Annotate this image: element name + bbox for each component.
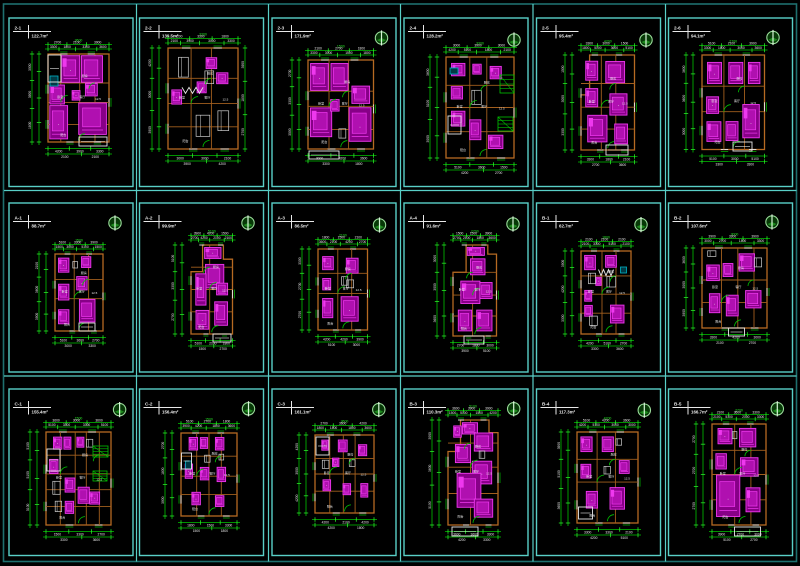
svg-text:3300: 3300 bbox=[76, 533, 84, 537]
svg-text:3000: 3000 bbox=[325, 51, 333, 55]
svg-text:2100: 2100 bbox=[585, 237, 593, 241]
svg-text:5100: 5100 bbox=[609, 242, 617, 246]
svg-text:3300: 3300 bbox=[716, 163, 724, 167]
svg-text:▪: ▪ bbox=[475, 250, 476, 253]
svg-text:▪: ▪ bbox=[76, 94, 77, 97]
svg-text:3600: 3600 bbox=[364, 426, 372, 430]
svg-text:▪: ▪ bbox=[63, 265, 64, 268]
svg-text:2700: 2700 bbox=[320, 421, 328, 425]
svg-text:1500: 1500 bbox=[338, 235, 346, 239]
svg-text:161.1m²: 161.1m² bbox=[295, 409, 312, 414]
svg-text:3300: 3300 bbox=[487, 533, 495, 537]
svg-text:3600: 3600 bbox=[488, 236, 496, 240]
svg-text:171.9m²: 171.9m² bbox=[295, 33, 312, 38]
svg-text:1800: 1800 bbox=[161, 467, 165, 475]
svg-text:▪: ▪ bbox=[470, 428, 471, 431]
svg-text:3600: 3600 bbox=[93, 538, 101, 542]
svg-text:3600: 3600 bbox=[77, 339, 85, 343]
svg-text:12.5: 12.5 bbox=[499, 107, 505, 111]
svg-text:5100: 5100 bbox=[483, 349, 491, 353]
svg-text:4200: 4200 bbox=[322, 521, 330, 525]
svg-text:5100: 5100 bbox=[426, 100, 430, 108]
svg-text:客厅: 客厅 bbox=[209, 471, 215, 476]
svg-text:110.3m²: 110.3m² bbox=[427, 409, 444, 414]
svg-text:12.5: 12.5 bbox=[752, 287, 758, 291]
svg-text:3900: 3900 bbox=[718, 533, 726, 537]
svg-text:3600: 3600 bbox=[478, 166, 486, 170]
svg-text:3900: 3900 bbox=[161, 496, 165, 504]
svg-text:▪: ▪ bbox=[725, 436, 726, 439]
svg-text:3900: 3900 bbox=[708, 234, 716, 238]
svg-text:▪: ▪ bbox=[728, 498, 729, 501]
svg-text:2700: 2700 bbox=[220, 347, 228, 351]
svg-text:▪: ▪ bbox=[495, 72, 496, 75]
svg-text:3900: 3900 bbox=[90, 240, 98, 244]
svg-text:5100: 5100 bbox=[328, 343, 336, 347]
svg-text:2100: 2100 bbox=[224, 157, 232, 161]
svg-text:5100: 5100 bbox=[454, 166, 462, 170]
svg-text:▪: ▪ bbox=[465, 321, 466, 324]
svg-text:阳台: 阳台 bbox=[589, 513, 595, 518]
svg-text:卧室: 卧室 bbox=[455, 469, 461, 474]
svg-text:2700: 2700 bbox=[288, 69, 292, 77]
svg-text:12.5: 12.5 bbox=[222, 288, 228, 292]
svg-text:1800: 1800 bbox=[28, 121, 32, 129]
svg-text:1800: 1800 bbox=[187, 524, 195, 528]
svg-text:3000: 3000 bbox=[73, 418, 81, 422]
svg-text:3900: 3900 bbox=[468, 406, 476, 410]
svg-text:1500: 1500 bbox=[221, 231, 229, 235]
svg-text:5100: 5100 bbox=[186, 419, 194, 423]
svg-text:4200: 4200 bbox=[55, 150, 63, 154]
svg-text:4200: 4200 bbox=[586, 342, 594, 346]
svg-text:阳台: 阳台 bbox=[461, 326, 467, 331]
svg-text:▪: ▪ bbox=[457, 431, 458, 434]
svg-text:B-1: B-1 bbox=[542, 216, 550, 221]
svg-text:3600: 3600 bbox=[682, 95, 686, 103]
svg-text:3300: 3300 bbox=[74, 240, 82, 244]
svg-text:3000: 3000 bbox=[628, 423, 636, 427]
svg-text:1500: 1500 bbox=[500, 166, 508, 170]
svg-text:3300: 3300 bbox=[757, 415, 765, 419]
svg-text:1800: 1800 bbox=[718, 46, 726, 50]
svg-text:▪: ▪ bbox=[598, 280, 599, 283]
svg-text:3000: 3000 bbox=[682, 128, 686, 136]
svg-text:3900: 3900 bbox=[184, 162, 192, 166]
svg-text:客厅: 客厅 bbox=[474, 287, 480, 292]
svg-text:2700: 2700 bbox=[171, 313, 175, 321]
svg-text:4200: 4200 bbox=[458, 538, 466, 542]
svg-text:2100: 2100 bbox=[742, 415, 750, 419]
svg-text:12.5: 12.5 bbox=[96, 477, 102, 481]
svg-text:客厅: 客厅 bbox=[79, 94, 85, 99]
svg-text:厨房: 厨房 bbox=[345, 266, 351, 271]
svg-text:4200: 4200 bbox=[359, 421, 367, 425]
svg-text:5100: 5100 bbox=[625, 46, 633, 50]
svg-text:2700: 2700 bbox=[241, 128, 245, 136]
svg-text:▪: ▪ bbox=[714, 73, 715, 76]
svg-text:厨房: 厨房 bbox=[738, 265, 744, 270]
svg-text:94.1m²: 94.1m² bbox=[691, 33, 705, 38]
svg-text:4200: 4200 bbox=[489, 411, 497, 415]
svg-text:3000: 3000 bbox=[177, 157, 185, 161]
svg-text:3600: 3600 bbox=[616, 347, 624, 351]
svg-text:3900: 3900 bbox=[557, 442, 561, 450]
svg-text:1500: 1500 bbox=[345, 51, 353, 55]
svg-text:客厅: 客厅 bbox=[739, 471, 745, 476]
svg-text:3300: 3300 bbox=[587, 158, 595, 162]
svg-text:▪: ▪ bbox=[586, 444, 587, 447]
svg-text:阳台: 阳台 bbox=[457, 514, 463, 519]
svg-text:4200: 4200 bbox=[175, 34, 183, 38]
svg-text:阳台: 阳台 bbox=[182, 138, 188, 143]
svg-text:5100: 5100 bbox=[557, 470, 561, 478]
svg-text:▪: ▪ bbox=[713, 272, 714, 275]
svg-text:3900: 3900 bbox=[28, 91, 32, 99]
svg-text:3600: 3600 bbox=[682, 256, 686, 264]
svg-text:卧室: 卧室 bbox=[57, 94, 63, 99]
svg-text:155.4m²: 155.4m² bbox=[32, 409, 49, 414]
svg-text:2100: 2100 bbox=[73, 40, 81, 44]
svg-text:12.5: 12.5 bbox=[359, 103, 365, 107]
svg-text:卧室: 卧室 bbox=[459, 287, 465, 292]
svg-text:3000: 3000 bbox=[65, 344, 73, 348]
svg-text:3900: 3900 bbox=[561, 260, 565, 268]
svg-text:客厅: 客厅 bbox=[481, 104, 487, 109]
svg-text:3000: 3000 bbox=[498, 43, 506, 47]
svg-text:▪: ▪ bbox=[349, 309, 350, 312]
svg-text:3300: 3300 bbox=[225, 524, 233, 528]
svg-text:厨房: 厨房 bbox=[213, 264, 219, 269]
svg-text:3000: 3000 bbox=[426, 135, 430, 143]
svg-text:3600: 3600 bbox=[228, 424, 236, 428]
svg-text:卧室: 卧室 bbox=[457, 104, 463, 109]
svg-text:3000: 3000 bbox=[295, 467, 299, 475]
svg-text:卧室: 卧室 bbox=[189, 471, 195, 476]
svg-text:3900: 3900 bbox=[749, 41, 757, 45]
svg-text:卧室: 卧室 bbox=[56, 475, 62, 480]
svg-text:2100: 2100 bbox=[330, 240, 338, 244]
svg-text:4200: 4200 bbox=[323, 338, 331, 342]
svg-text:5100: 5100 bbox=[708, 41, 716, 45]
svg-text:107.6m²: 107.6m² bbox=[691, 223, 708, 228]
svg-text:▪: ▪ bbox=[94, 497, 95, 500]
svg-text:2700: 2700 bbox=[92, 339, 100, 343]
svg-text:2-5: 2-5 bbox=[542, 26, 549, 31]
svg-text:2700: 2700 bbox=[54, 40, 62, 44]
svg-text:2700: 2700 bbox=[495, 171, 503, 175]
svg-text:3000: 3000 bbox=[433, 283, 437, 291]
svg-text:3900: 3900 bbox=[182, 424, 190, 428]
svg-text:3300: 3300 bbox=[89, 344, 97, 348]
svg-text:阳台: 阳台 bbox=[327, 320, 333, 325]
svg-text:3600: 3600 bbox=[734, 410, 742, 414]
svg-text:1500: 1500 bbox=[56, 245, 64, 249]
svg-text:2700: 2700 bbox=[750, 538, 758, 542]
svg-text:2-2: 2-2 bbox=[145, 26, 152, 31]
svg-text:2100: 2100 bbox=[213, 236, 221, 240]
svg-text:1800: 1800 bbox=[348, 426, 356, 430]
svg-text:2100: 2100 bbox=[355, 235, 363, 239]
svg-text:3600: 3600 bbox=[52, 418, 60, 422]
svg-text:4200: 4200 bbox=[207, 231, 215, 235]
svg-text:12.5: 12.5 bbox=[356, 288, 362, 292]
svg-text:卧室: 卧室 bbox=[62, 289, 68, 294]
svg-text:客厅: 客厅 bbox=[608, 474, 614, 479]
svg-text:3900: 3900 bbox=[94, 40, 102, 44]
svg-text:1800: 1800 bbox=[363, 51, 371, 55]
svg-text:阳台: 阳台 bbox=[321, 139, 327, 144]
svg-text:62.7m²: 62.7m² bbox=[559, 223, 573, 228]
svg-text:2700: 2700 bbox=[692, 502, 696, 510]
svg-text:1500: 1500 bbox=[207, 524, 215, 528]
svg-text:3000: 3000 bbox=[28, 63, 32, 71]
svg-text:2-1: 2-1 bbox=[15, 26, 22, 31]
svg-text:3300: 3300 bbox=[584, 531, 592, 535]
svg-text:3000: 3000 bbox=[611, 423, 619, 427]
svg-text:阳台: 阳台 bbox=[715, 318, 721, 323]
svg-text:12.5: 12.5 bbox=[486, 472, 492, 476]
svg-text:1800: 1800 bbox=[322, 235, 330, 239]
svg-text:3600: 3600 bbox=[623, 418, 631, 422]
svg-text:3000: 3000 bbox=[486, 344, 494, 348]
svg-text:1800: 1800 bbox=[64, 45, 72, 49]
svg-text:▪: ▪ bbox=[326, 484, 327, 487]
svg-text:3300: 3300 bbox=[561, 128, 565, 136]
svg-text:3600: 3600 bbox=[611, 46, 619, 50]
svg-text:2100: 2100 bbox=[463, 236, 471, 240]
svg-text:12.5: 12.5 bbox=[95, 97, 101, 101]
svg-text:3300: 3300 bbox=[197, 34, 205, 38]
svg-text:3000: 3000 bbox=[602, 41, 610, 45]
svg-text:▪: ▪ bbox=[714, 303, 715, 306]
svg-text:2700: 2700 bbox=[692, 435, 696, 443]
svg-text:3900: 3900 bbox=[461, 349, 469, 353]
svg-text:2100: 2100 bbox=[618, 237, 626, 241]
svg-text:95.4m²: 95.4m² bbox=[559, 33, 573, 38]
svg-text:▪: ▪ bbox=[212, 252, 213, 255]
svg-text:1500: 1500 bbox=[95, 245, 103, 249]
svg-text:12.5: 12.5 bbox=[753, 474, 759, 478]
svg-text:▪: ▪ bbox=[327, 263, 328, 266]
svg-text:厨房: 厨房 bbox=[82, 452, 88, 457]
svg-text:3000: 3000 bbox=[148, 91, 152, 99]
svg-text:卧室: 卧室 bbox=[586, 474, 592, 479]
svg-text:▪: ▪ bbox=[360, 126, 361, 129]
svg-text:客厅: 客厅 bbox=[204, 95, 210, 100]
svg-text:91.6m²: 91.6m² bbox=[427, 223, 441, 228]
svg-text:阳台: 阳台 bbox=[327, 504, 333, 509]
svg-text:客厅: 客厅 bbox=[211, 286, 217, 291]
svg-text:阳台: 阳台 bbox=[198, 324, 204, 329]
svg-text:阳台: 阳台 bbox=[715, 139, 721, 144]
svg-text:3300: 3300 bbox=[60, 538, 68, 542]
svg-text:2100: 2100 bbox=[582, 242, 590, 246]
svg-text:3600: 3600 bbox=[339, 421, 347, 425]
svg-text:2700: 2700 bbox=[161, 442, 165, 450]
svg-text:阳台: 阳台 bbox=[591, 139, 597, 144]
svg-text:2700: 2700 bbox=[335, 46, 343, 50]
svg-text:4200: 4200 bbox=[195, 424, 203, 428]
svg-text:2100: 2100 bbox=[61, 155, 69, 159]
svg-text:12.5: 12.5 bbox=[624, 476, 630, 480]
svg-text:5100: 5100 bbox=[428, 501, 432, 509]
svg-text:3000: 3000 bbox=[316, 157, 324, 161]
svg-text:2-4: 2-4 bbox=[410, 26, 417, 31]
svg-text:C-1: C-1 bbox=[15, 402, 23, 407]
svg-text:阳台: 阳台 bbox=[722, 514, 728, 519]
svg-text:4200: 4200 bbox=[295, 494, 299, 502]
svg-text:▪: ▪ bbox=[222, 77, 223, 80]
svg-text:1800: 1800 bbox=[212, 424, 220, 428]
svg-text:3300: 3300 bbox=[227, 39, 235, 43]
svg-text:客厅: 客厅 bbox=[608, 99, 614, 104]
svg-text:阳台: 阳台 bbox=[192, 506, 198, 511]
svg-text:3000: 3000 bbox=[453, 43, 461, 47]
svg-text:5100: 5100 bbox=[594, 46, 602, 50]
svg-text:5100: 5100 bbox=[464, 48, 472, 52]
svg-text:5100: 5100 bbox=[583, 418, 591, 422]
svg-text:5100: 5100 bbox=[101, 423, 109, 427]
svg-text:▪: ▪ bbox=[202, 320, 203, 323]
svg-text:3000: 3000 bbox=[704, 239, 712, 243]
svg-text:卧室: 卧室 bbox=[318, 101, 324, 106]
svg-text:3300: 3300 bbox=[593, 242, 601, 246]
svg-text:1800: 1800 bbox=[221, 529, 229, 533]
svg-text:5100: 5100 bbox=[621, 536, 629, 540]
svg-text:1800: 1800 bbox=[223, 419, 231, 423]
svg-text:3900: 3900 bbox=[186, 39, 194, 43]
svg-text:3300: 3300 bbox=[586, 41, 594, 45]
svg-text:3900: 3900 bbox=[194, 231, 202, 235]
svg-text:12.5: 12.5 bbox=[750, 101, 756, 105]
svg-text:厨房: 厨房 bbox=[484, 79, 490, 84]
svg-text:3900: 3900 bbox=[751, 234, 759, 238]
svg-text:2700: 2700 bbox=[98, 533, 106, 537]
svg-text:3300: 3300 bbox=[757, 239, 765, 243]
svg-text:3300: 3300 bbox=[82, 45, 90, 49]
svg-text:4200: 4200 bbox=[200, 236, 208, 240]
svg-text:1800: 1800 bbox=[241, 94, 245, 102]
svg-text:厨房: 厨房 bbox=[212, 451, 218, 456]
svg-text:1500: 1500 bbox=[476, 411, 484, 415]
svg-text:2700: 2700 bbox=[719, 239, 727, 243]
svg-text:3000: 3000 bbox=[208, 39, 216, 43]
svg-text:3000: 3000 bbox=[428, 432, 432, 440]
svg-text:1500: 1500 bbox=[456, 231, 464, 235]
svg-text:2100: 2100 bbox=[601, 237, 609, 241]
svg-text:3900: 3900 bbox=[485, 406, 493, 410]
svg-text:3000: 3000 bbox=[66, 245, 74, 249]
svg-text:1800: 1800 bbox=[317, 426, 325, 430]
svg-text:1800: 1800 bbox=[221, 34, 229, 38]
svg-text:12.5: 12.5 bbox=[222, 98, 228, 102]
svg-text:▪: ▪ bbox=[58, 124, 59, 127]
svg-text:4200: 4200 bbox=[461, 171, 469, 175]
svg-text:3300: 3300 bbox=[561, 314, 565, 322]
svg-text:厨房: 厨房 bbox=[736, 76, 742, 81]
svg-text:C-3: C-3 bbox=[278, 402, 286, 407]
svg-text:客厅: 客厅 bbox=[473, 469, 479, 474]
svg-text:1800: 1800 bbox=[477, 236, 485, 240]
svg-text:4200: 4200 bbox=[345, 240, 353, 244]
svg-text:2100: 2100 bbox=[728, 41, 736, 45]
svg-text:厨房: 厨房 bbox=[81, 270, 87, 275]
svg-text:12.5: 12.5 bbox=[224, 473, 230, 477]
svg-text:2100: 2100 bbox=[225, 236, 233, 240]
svg-text:3900: 3900 bbox=[76, 150, 84, 154]
svg-text:B-5: B-5 bbox=[674, 402, 682, 407]
svg-text:1500: 1500 bbox=[470, 231, 478, 235]
svg-text:厨房: 厨房 bbox=[741, 446, 747, 451]
svg-text:4200: 4200 bbox=[328, 526, 336, 530]
svg-text:3600: 3600 bbox=[319, 240, 327, 244]
svg-text:B-4: B-4 bbox=[542, 402, 550, 407]
svg-text:3600: 3600 bbox=[426, 68, 430, 76]
svg-text:3600: 3600 bbox=[99, 45, 107, 49]
svg-text:▪: ▪ bbox=[176, 96, 177, 99]
svg-text:2700: 2700 bbox=[749, 341, 757, 345]
svg-text:▪: ▪ bbox=[475, 130, 476, 133]
svg-text:阳台: 阳台 bbox=[60, 132, 66, 137]
svg-text:2100: 2100 bbox=[92, 155, 100, 159]
svg-text:3300: 3300 bbox=[591, 347, 599, 351]
svg-text:4200: 4200 bbox=[148, 59, 152, 67]
svg-text:3600: 3600 bbox=[557, 502, 561, 510]
svg-text:5100: 5100 bbox=[751, 157, 759, 161]
svg-text:3600: 3600 bbox=[433, 315, 437, 323]
svg-text:厨房: 厨房 bbox=[344, 79, 350, 84]
svg-text:117.3m²: 117.3m² bbox=[559, 409, 576, 414]
svg-text:1500: 1500 bbox=[621, 41, 629, 45]
svg-text:2700: 2700 bbox=[298, 311, 302, 319]
svg-text:3300: 3300 bbox=[288, 97, 292, 105]
svg-text:3300: 3300 bbox=[747, 163, 755, 167]
svg-text:▪: ▪ bbox=[196, 498, 197, 501]
svg-text:2-3: 2-3 bbox=[278, 26, 285, 31]
svg-text:122.7m²: 122.7m² bbox=[32, 33, 49, 38]
svg-text:1800: 1800 bbox=[582, 46, 590, 50]
svg-text:3600: 3600 bbox=[682, 65, 686, 73]
svg-text:1800: 1800 bbox=[355, 162, 363, 166]
svg-text:1500: 1500 bbox=[199, 347, 207, 351]
svg-text:1800: 1800 bbox=[357, 526, 365, 530]
svg-text:4200: 4200 bbox=[340, 338, 348, 342]
svg-text:128.2m²: 128.2m² bbox=[427, 33, 444, 38]
svg-text:客厅: 客厅 bbox=[735, 284, 741, 289]
svg-text:2100: 2100 bbox=[504, 48, 512, 52]
svg-text:阳台: 阳台 bbox=[460, 147, 466, 152]
svg-text:88.7m²: 88.7m² bbox=[32, 223, 46, 228]
svg-text:3300: 3300 bbox=[310, 51, 318, 55]
svg-text:▪: ▪ bbox=[618, 105, 619, 108]
svg-text:卧室: 卧室 bbox=[588, 289, 594, 294]
svg-text:5100: 5100 bbox=[460, 411, 468, 415]
svg-text:卧室: 卧室 bbox=[712, 284, 718, 289]
svg-text:厨房: 厨房 bbox=[475, 443, 481, 448]
svg-text:4200: 4200 bbox=[602, 418, 610, 422]
svg-text:4200: 4200 bbox=[219, 162, 227, 166]
svg-text:3600: 3600 bbox=[35, 286, 39, 294]
svg-text:3900: 3900 bbox=[356, 338, 364, 342]
svg-text:2100: 2100 bbox=[622, 242, 630, 246]
svg-text:5100: 5100 bbox=[26, 471, 30, 479]
svg-text:4200: 4200 bbox=[295, 443, 299, 451]
svg-text:2700: 2700 bbox=[592, 163, 600, 167]
svg-text:5100: 5100 bbox=[26, 442, 30, 450]
svg-text:2700: 2700 bbox=[191, 236, 199, 240]
svg-text:4200: 4200 bbox=[590, 536, 598, 540]
